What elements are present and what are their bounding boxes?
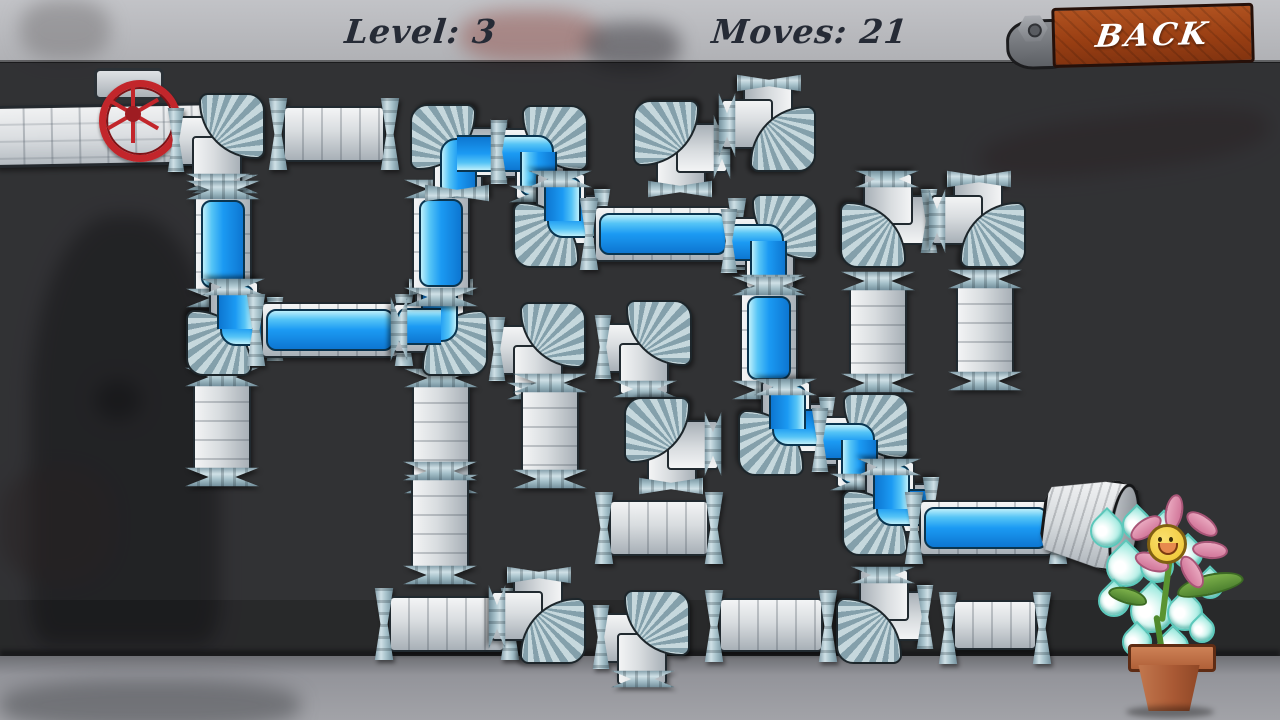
flower-eye bbox=[1158, 537, 1162, 542]
flower-petal bbox=[1182, 506, 1222, 541]
flower-pot bbox=[1135, 665, 1203, 711]
flower-pot-shadow bbox=[1126, 706, 1214, 718]
flower-mouth bbox=[1158, 543, 1178, 555]
flower-eye bbox=[1169, 537, 1173, 542]
flower-leaf bbox=[1107, 583, 1150, 609]
game-screen: Level: 3 Moves: 21 BACK bbox=[0, 0, 1280, 720]
flower-smiley-face bbox=[1147, 524, 1187, 564]
flower bbox=[0, 0, 1280, 720]
flower-petal bbox=[1191, 539, 1228, 560]
